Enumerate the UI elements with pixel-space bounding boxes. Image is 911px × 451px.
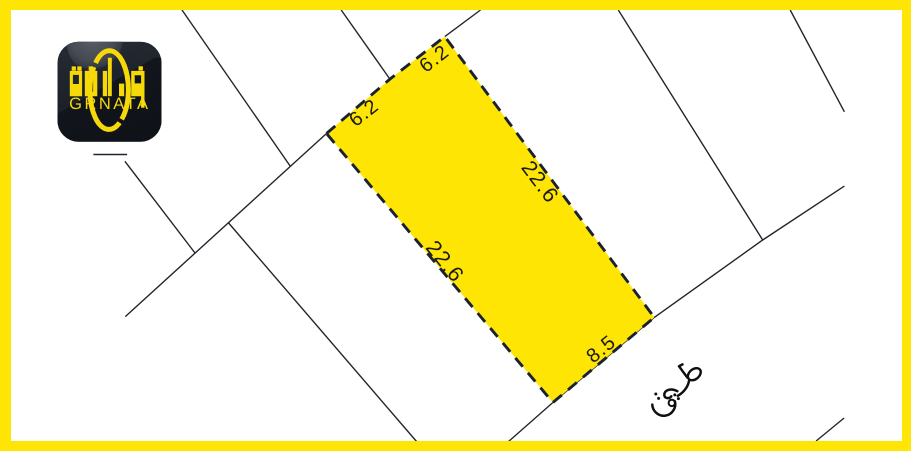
svg-text:GRNATA: GRNATA [69, 95, 150, 113]
